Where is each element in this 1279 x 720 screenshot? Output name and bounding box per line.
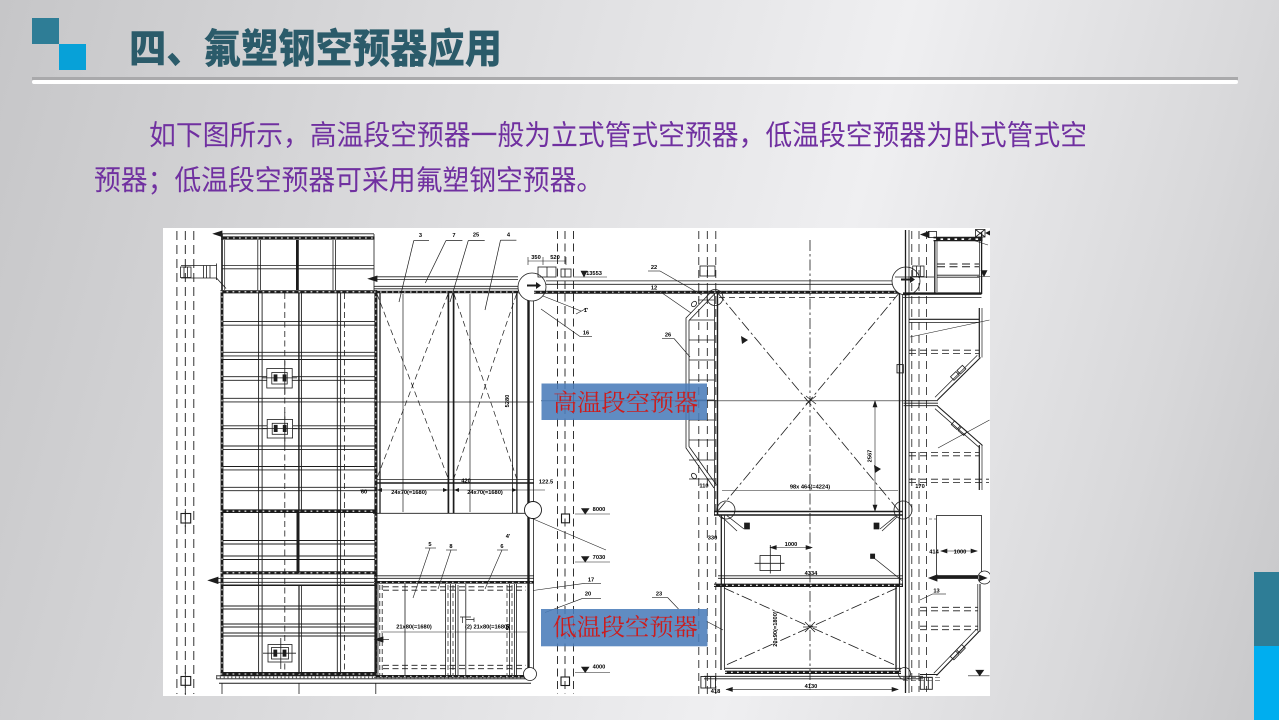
svg-text:520: 520	[550, 255, 560, 261]
svg-text:414: 414	[929, 550, 939, 556]
svg-text:418: 418	[711, 689, 721, 695]
svg-text:4': 4'	[506, 534, 511, 540]
svg-text:13553: 13553	[586, 271, 602, 277]
svg-text:23: 23	[656, 592, 662, 598]
svg-text:1000: 1000	[785, 542, 798, 548]
svg-text:170: 170	[915, 484, 925, 490]
svg-text:12: 12	[651, 286, 657, 292]
svg-text:1000: 1000	[954, 550, 967, 556]
svg-text:3: 3	[419, 233, 422, 239]
svg-text:20: 20	[585, 592, 591, 598]
svg-text:24x70(=1680): 24x70(=1680)	[467, 490, 503, 496]
svg-text:110: 110	[699, 484, 708, 490]
svg-text:2567: 2567	[868, 450, 874, 463]
svg-text:330: 330	[708, 536, 718, 542]
svg-text:21x80(=1680): 21x80(=1680)	[396, 624, 432, 630]
svg-text:4334: 4334	[805, 571, 818, 577]
svg-text:1': 1'	[584, 308, 589, 314]
svg-text:5280: 5280	[505, 395, 511, 408]
svg-text:98x 464(=4224): 98x 464(=4224)	[790, 485, 830, 491]
svg-text:16: 16	[583, 331, 589, 337]
svg-text:5: 5	[428, 542, 431, 548]
svg-text:24x70(=1680): 24x70(=1680)	[391, 490, 427, 496]
svg-text:6: 6	[500, 544, 503, 550]
svg-text:17: 17	[588, 578, 594, 584]
svg-text:(2) 21x80(=1680): (2) 21x80(=1680)	[465, 624, 509, 630]
svg-text:7: 7	[452, 233, 455, 239]
svg-text:22: 22	[651, 265, 657, 271]
svg-text:20x90(=1800): 20x90(=1800)	[773, 611, 779, 647]
svg-text:50: 50	[506, 624, 512, 630]
svg-text:8: 8	[449, 544, 452, 550]
svg-text:13: 13	[933, 589, 939, 595]
svg-text:350: 350	[531, 255, 541, 261]
svg-text:60: 60	[361, 490, 367, 496]
svg-text:122.5: 122.5	[539, 480, 553, 486]
svg-text:25: 25	[473, 233, 479, 239]
svg-text:26: 26	[665, 333, 671, 339]
svg-text:8000: 8000	[593, 507, 606, 513]
svg-text:4130: 4130	[805, 684, 818, 690]
svg-text:420: 420	[461, 479, 471, 485]
svg-text:7030: 7030	[593, 555, 606, 561]
svg-text:4000: 4000	[593, 665, 606, 671]
